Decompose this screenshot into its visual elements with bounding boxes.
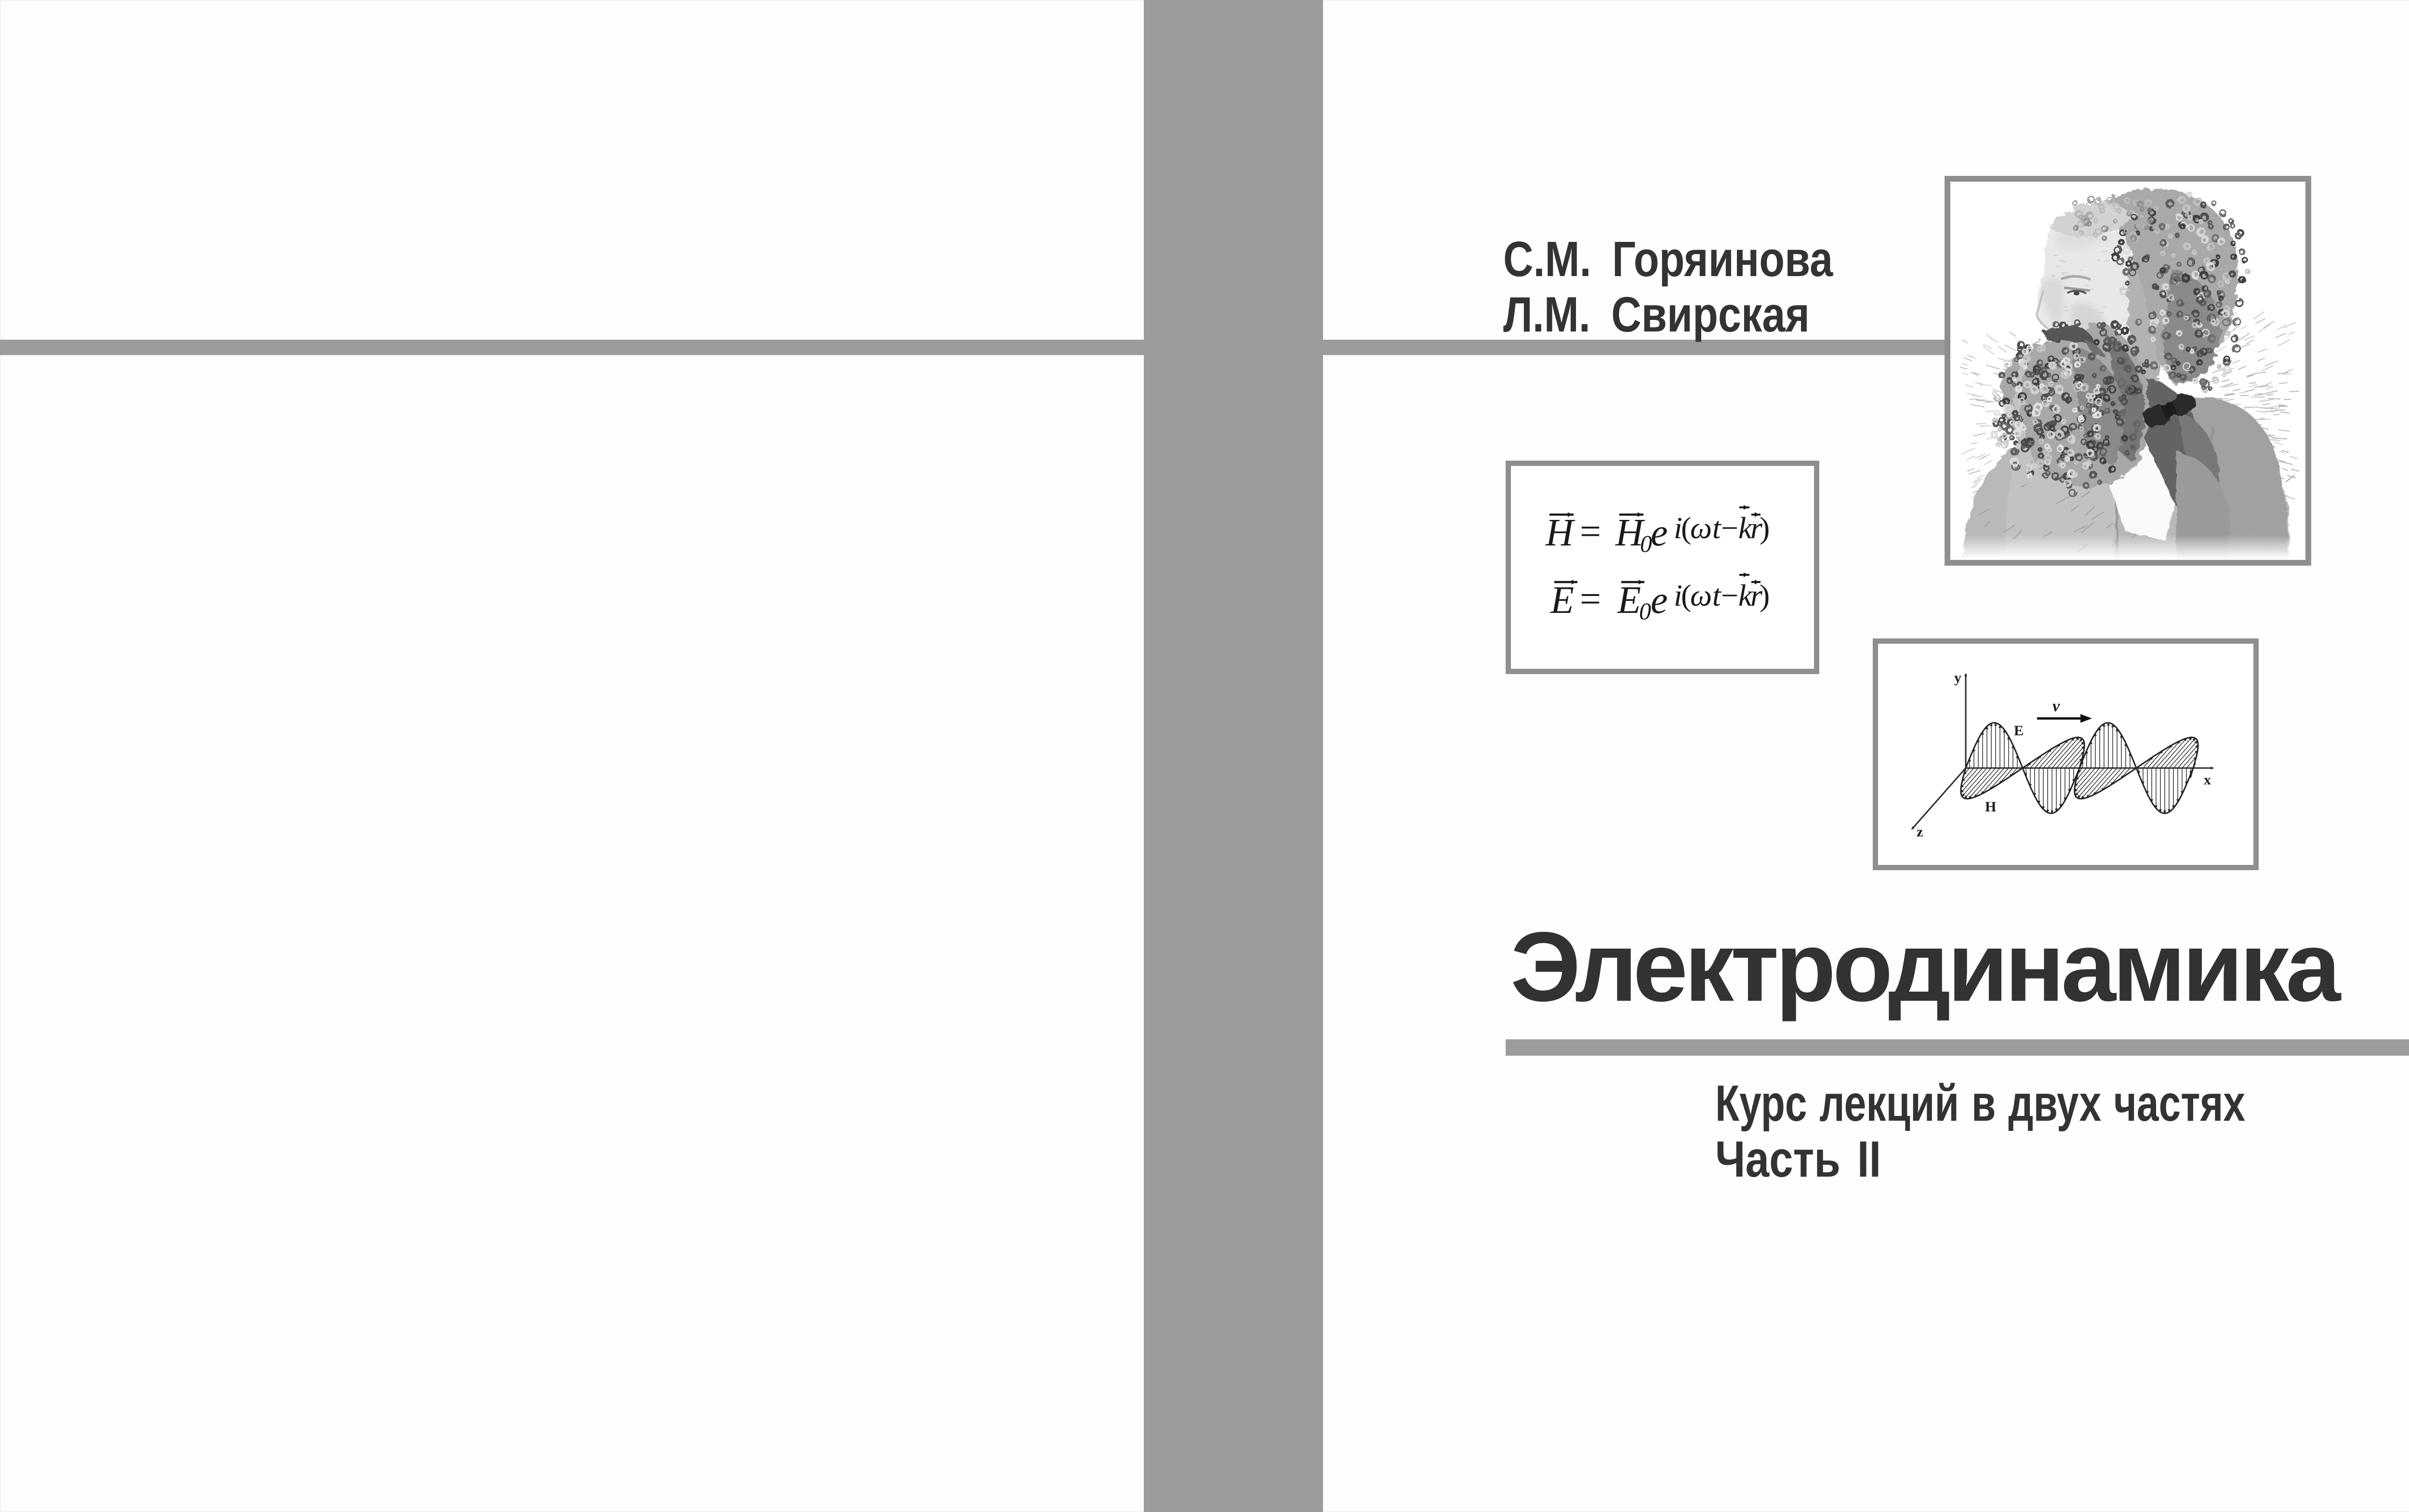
svg-text:H: H [1985,799,1996,815]
svg-text:0: 0 [1639,597,1651,624]
svg-text:ω: ω [1690,578,1712,612]
svg-text:H: H [1545,512,1575,554]
svg-text:v: v [2052,697,2060,715]
svg-text:E: E [1550,579,1574,622]
svg-text:ω: ω [1690,511,1712,545]
svg-text:E: E [2014,723,2024,739]
svg-text:E: E [1617,579,1641,622]
svg-text:z: z [1917,824,1923,840]
svg-text:−: − [1721,578,1738,612]
svg-text:e: e [1651,512,1668,554]
svg-text:e: e [1651,579,1668,622]
svg-text:y: y [1954,670,1961,686]
svg-text:=: = [1580,510,1601,552]
svg-text:t: t [1712,511,1722,545]
svg-text:): ) [1760,511,1770,545]
svg-text:): ) [1760,578,1770,612]
svg-text:=: = [1580,578,1601,620]
svg-text:x: x [2204,772,2211,788]
svg-text:t: t [1712,578,1722,612]
svg-text:−: − [1721,511,1738,545]
